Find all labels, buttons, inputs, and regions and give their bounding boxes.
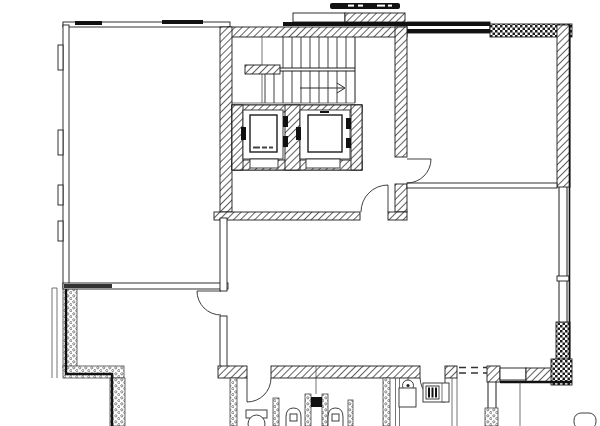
wc-partition [348, 400, 353, 426]
elevator-right [300, 110, 350, 168]
wall-right-horizontal [407, 183, 557, 188]
wall-center-vertical-upper [220, 218, 227, 291]
elevator-left [243, 110, 283, 168]
staircase [232, 37, 355, 103]
door-lobby-to-center-room [361, 185, 388, 212]
urinal-icon [286, 408, 301, 426]
exterior-fixture [574, 413, 596, 426]
wall-center-vertical-lower [220, 316, 227, 368]
doors [197, 159, 445, 402]
outer-walls [52, 20, 572, 426]
window-opening-bottom-right [500, 368, 526, 380]
stair-guard-wall [245, 65, 280, 74]
bottom-right-details [520, 382, 596, 426]
elevator-cab-label [253, 147, 273, 149]
wc-partition [273, 398, 279, 426]
dashed-opening-lines [459, 368, 487, 374]
electrical-panel-icon [423, 383, 449, 402]
door-corridor-left-wc [247, 378, 271, 402]
stair-elevator-core [214, 27, 407, 220]
bottom-right-wall [485, 359, 572, 426]
wall-dark-segment [64, 284, 112, 288]
roof-canopy [283, 3, 407, 26]
floor-plan-sheet: Architectural floor plan — building stor… [0, 0, 600, 426]
toilet-icon [246, 410, 267, 426]
floor-plan-drawing: Architectural floor plan — building stor… [0, 0, 600, 426]
stair-direction-arrow [300, 83, 345, 93]
shower-tray-icon [399, 388, 416, 407]
window-band-top-right [407, 22, 490, 33]
elevator-bank [232, 105, 362, 170]
stair-treads-upper [283, 37, 346, 68]
door-core-to-upper-right-room [407, 159, 431, 183]
stair-treads-lower [265, 71, 346, 103]
lower-left-walls [52, 287, 125, 426]
window-band-right [557, 187, 569, 322]
interior-walls [63, 183, 557, 368]
right-wall [556, 25, 570, 368]
left-wall [58, 25, 69, 287]
wc-partition [383, 378, 390, 426]
door-center-to-lower-left-room [197, 291, 221, 315]
urinal-icon [328, 408, 343, 426]
